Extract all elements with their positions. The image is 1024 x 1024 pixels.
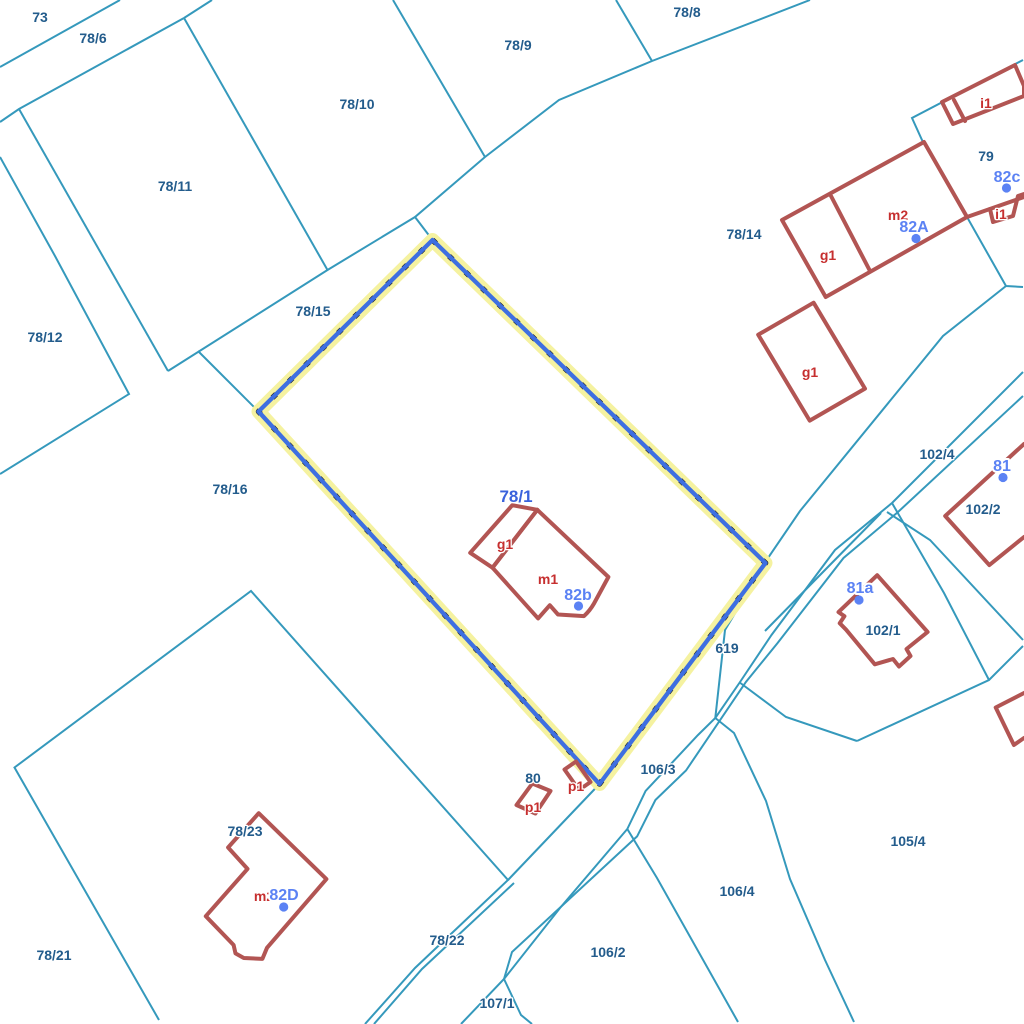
svg-text:g1: g1 xyxy=(497,536,514,552)
svg-text:78/8: 78/8 xyxy=(673,4,700,20)
svg-text:m1: m1 xyxy=(538,571,558,587)
svg-text:78/10: 78/10 xyxy=(339,96,374,112)
svg-text:102/1: 102/1 xyxy=(865,622,900,638)
svg-text:p1: p1 xyxy=(525,799,542,815)
svg-text:107/1: 107/1 xyxy=(479,995,514,1011)
svg-text:78/23: 78/23 xyxy=(227,823,262,839)
svg-text:p1: p1 xyxy=(568,778,585,794)
svg-text:619: 619 xyxy=(715,640,739,656)
svg-text:102/4: 102/4 xyxy=(919,446,954,462)
svg-text:78/15: 78/15 xyxy=(295,303,330,319)
svg-text:78/21: 78/21 xyxy=(36,947,71,963)
svg-text:g1: g1 xyxy=(802,364,819,380)
svg-text:78/16: 78/16 xyxy=(212,481,247,497)
svg-text:82A: 82A xyxy=(899,219,929,236)
svg-text:78/1: 78/1 xyxy=(499,487,532,506)
svg-text:81: 81 xyxy=(993,458,1011,475)
svg-text:80: 80 xyxy=(525,770,541,786)
svg-text:i1: i1 xyxy=(995,206,1007,222)
svg-text:106/2: 106/2 xyxy=(590,944,625,960)
svg-text:106/4: 106/4 xyxy=(719,883,754,899)
svg-text:78/12: 78/12 xyxy=(27,329,62,345)
svg-text:73: 73 xyxy=(32,9,48,25)
svg-text:102/2: 102/2 xyxy=(965,501,1000,517)
svg-text:i1: i1 xyxy=(980,95,992,111)
svg-text:79: 79 xyxy=(978,148,994,164)
svg-text:105/4: 105/4 xyxy=(890,833,925,849)
svg-text:78/14: 78/14 xyxy=(726,226,761,242)
svg-text:g1: g1 xyxy=(820,247,837,263)
svg-text:78/11: 78/11 xyxy=(158,178,192,194)
svg-text:78/22: 78/22 xyxy=(429,932,464,948)
svg-text:78/9: 78/9 xyxy=(504,37,531,53)
svg-text:78/6: 78/6 xyxy=(79,30,106,46)
svg-text:82D: 82D xyxy=(269,887,298,904)
svg-text:106/3: 106/3 xyxy=(640,761,675,777)
svg-text:81a: 81a xyxy=(847,580,874,597)
